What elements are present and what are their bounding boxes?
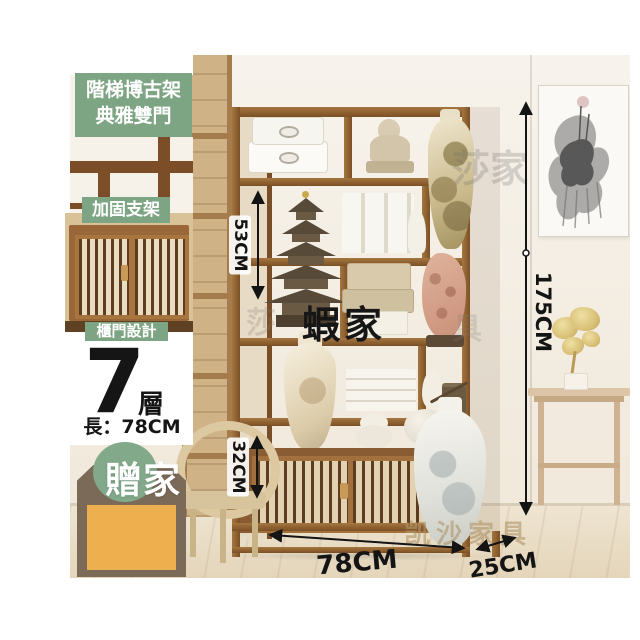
console-table-apron [534,396,624,402]
cabinet-closeup [69,225,189,321]
white-books [342,193,414,253]
feature-badge-brace: 加固支架 [82,197,170,223]
yellow-swatch [87,505,176,570]
console-table-stretcher [538,463,620,468]
left-column-background [70,55,193,75]
rattan-chair-seat [182,491,266,509]
cabinet-handle [340,483,348,499]
chair-leg [190,509,196,557]
foo-dog-statue [370,135,410,163]
white-sculpture [408,209,426,253]
dimension-upper-height: 53CM [229,215,251,274]
watermark-mid-left: 莎 [246,298,276,342]
ink-painting-art [539,86,626,234]
dimension-total-height: 175CM [531,272,555,352]
pagoda-tier [292,234,320,242]
cream-vase [284,343,336,449]
chair-leg [220,509,226,563]
gift-badge-text: 贈家 [105,450,181,504]
stacked-books [346,369,416,411]
gold-ornament-base [564,373,588,390]
title-line2: 典雅雙門 [75,104,192,130]
pagoda-roof [282,220,330,234]
watermark-bottom: 凯沙家具 [404,514,532,551]
gold-ornament [582,331,600,347]
pagoda-finial [302,191,309,198]
beige-box [347,263,411,291]
pagoda-tier [284,279,328,289]
length-label: 長：78CM [72,412,192,439]
shelf-divider [344,117,352,178]
pagoda-roof [270,265,342,279]
gourd-vase [356,425,392,449]
cabinet-closeup-handle [121,265,128,281]
cabinet-closeup-door [131,235,189,319]
title-badge: 階梯博古架 典雅雙門 [75,73,192,137]
console-table-leg [614,402,620,505]
watermark-center: 蝦家 [302,294,386,349]
dimension-cabinet-height: 32CM [227,437,249,496]
detail-photo-cabinet-doors [65,213,193,332]
product-listing-image: 蝦家 莎家 莎 具 凯沙家具 階梯博古架 典雅雙門 加固支架 櫃門設計 7 層 … [0,0,640,640]
console-table-leg [538,402,544,505]
ink-painting [538,85,629,237]
storage-box [248,141,328,173]
chair-leg [252,509,258,557]
gold-ornament [570,307,600,331]
pagoda-roof [276,242,336,256]
foo-dog-base [366,161,414,173]
pagoda-roof [288,198,324,212]
watermark-mid-right: 具 [452,304,482,348]
pagoda-tier [296,212,316,220]
pagoda-tier [288,256,324,265]
watermark-top-right: 莎家 [452,138,528,193]
storage-box [252,117,324,145]
title-line1: 階梯博古架 [75,78,192,104]
shelf-top-rail [232,107,470,117]
